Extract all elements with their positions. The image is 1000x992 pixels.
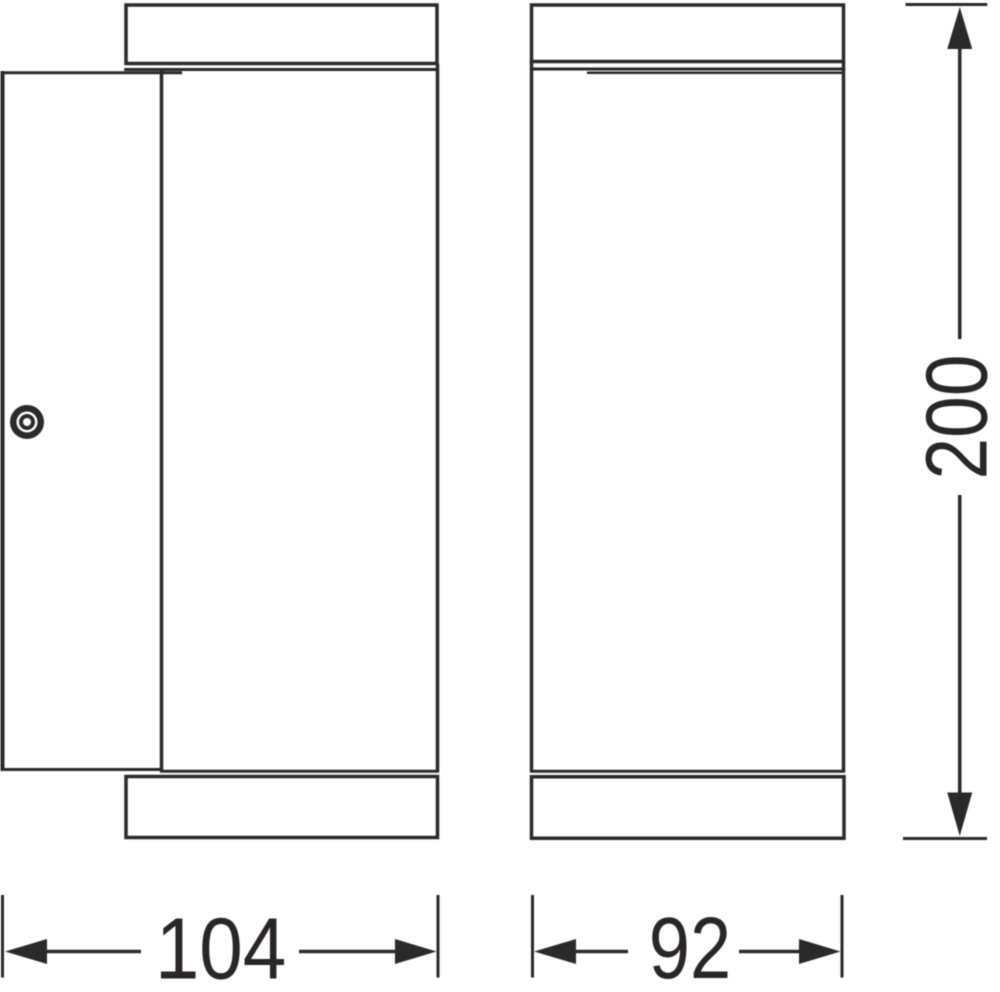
svg-text:92: 92: [649, 900, 731, 992]
svg-text:104: 104: [156, 900, 287, 992]
svg-text:200: 200: [909, 355, 1000, 480]
